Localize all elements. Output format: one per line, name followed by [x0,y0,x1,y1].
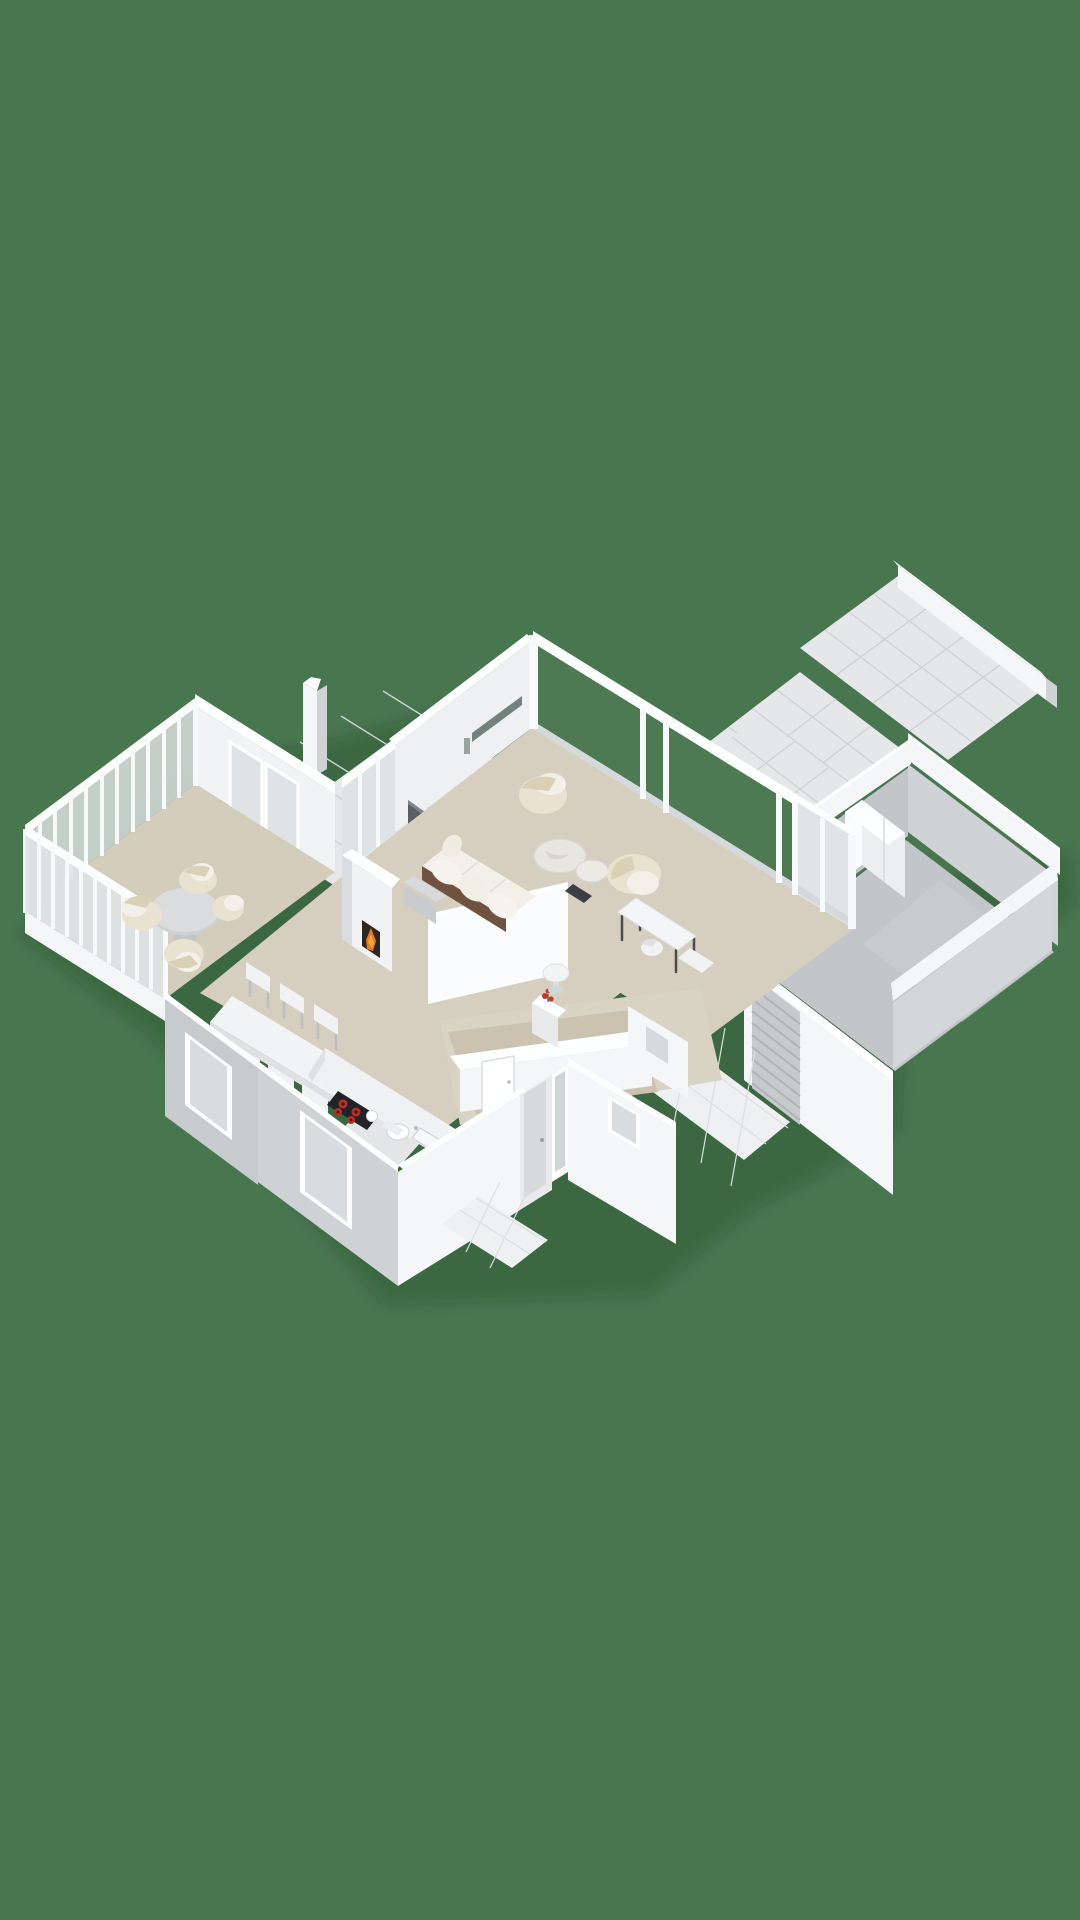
corner-post [529,635,538,729]
floorplan-canvas[interactable] [0,0,1080,1920]
slit-window-notch [464,738,470,754]
wicker-chair [212,895,244,921]
hand-basin [367,1111,378,1122]
sidelight-window [555,1071,565,1172]
chimney-stack [303,677,327,775]
floorplan-render [0,0,1080,1920]
